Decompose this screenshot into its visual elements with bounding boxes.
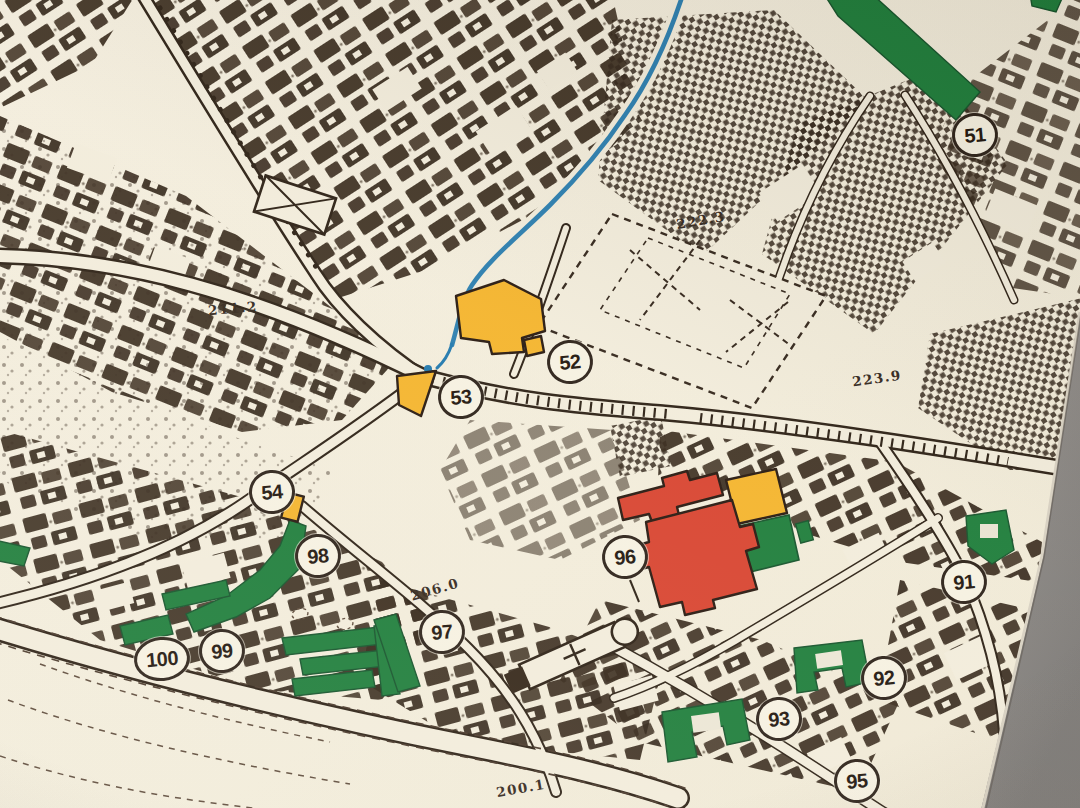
map-photo: 51 52 53 54 91 92 93 95 96 97 98 99 100 … — [0, 0, 1080, 808]
map-canvas — [0, 0, 1080, 808]
